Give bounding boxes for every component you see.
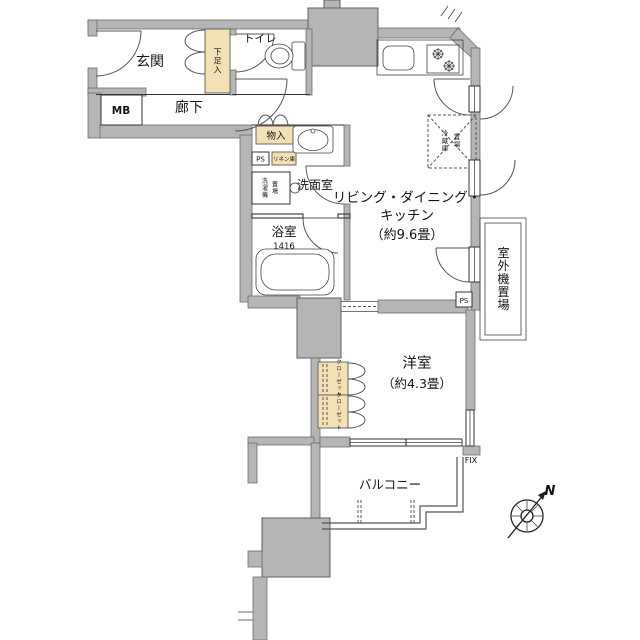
washroom-label: 洗面室 [297,177,333,192]
hallway-door-swing [235,79,287,131]
linen-cabinet-label: リネン庫 [273,155,296,163]
balcony: バルコニー [322,457,463,529]
top-pillar-block [308,8,378,66]
fridge-space-label-col2: 置場 [452,133,460,149]
western-room-label-line1: 洋室 [403,355,432,372]
sliding-door-ldk-bedroom [341,302,378,312]
room-toilet: トイレ [236,32,305,72]
balcony-label: バルコニー [359,477,421,492]
pipe-space-2-label: PS [460,297,469,305]
bathroom-label: 浴室 [271,224,296,239]
center-pillar-block [297,298,341,358]
washer-space-label-col1: 洗濯機 [261,177,268,199]
floor-plan-svg: 玄関 下足入 トイレ MB 廊下 物入 PS リネン庫 [0,0,640,640]
compass-icon: N [508,484,556,538]
stove-icon [427,45,459,73]
hallway-label: 廊下 [175,99,203,116]
entrance-label: 玄関 [136,53,164,70]
ldk-label-line3: （約9.6畳） [371,228,444,243]
outdoor-unit-label: 室外機置場 [496,245,510,311]
bedroom-windows: FIX [350,410,478,465]
meter-box-label: MB [112,105,130,117]
window-swing-outer [480,160,515,195]
closet-lower-label: クローゼット [335,392,342,431]
room-entrance: 玄関 下足入 [96,29,230,93]
window-swing [434,79,470,115]
room-western: 洋室 （約4.3畳） クローゼット クローゼット FIX [318,355,478,465]
shoe-cabinet-door [185,52,205,74]
range-hood-ticks [441,6,462,22]
closet-lower: クローゼット [318,392,365,431]
bathroom-door-swing [303,218,338,253]
door-swing [436,248,470,282]
closet-door [348,396,365,412]
storage-door [273,115,288,126]
kitchen-sink-icon [383,46,414,70]
kitchen-counter [377,6,463,75]
window-swing-outer [480,86,513,119]
compass-north-label: N [545,484,556,499]
vanity-sink-icon [293,126,333,153]
toilet-right-wall [306,29,312,95]
storage-label: 物入 [266,130,286,142]
floor-plan-canvas: 玄関 下足入 トイレ MB 廊下 物入 PS リネン庫 [0,0,640,640]
room-hallway: MB 廊下 [101,79,287,131]
balcony-railing [322,457,463,529]
bottom-pillar-block [262,518,330,577]
closet-upper: クローゼット [318,359,365,398]
shoe-cabinet-door [185,30,205,52]
bathtub-icon [256,249,334,295]
toilet-icon [265,42,305,70]
fix-window-label: FIX [465,456,478,465]
closet-door [348,379,365,395]
western-room-label-line2: （約4.3畳） [382,376,452,391]
fridge-space-label-col1: 冷蔵庫 [440,128,448,152]
entrance-door-swing [96,31,141,76]
ldk-label-line1: リビング・ダイニング・ [333,190,482,206]
closet-door [348,363,365,379]
room-bathroom: 浴室 1416 [256,218,338,295]
ldk-label-line2: キッチン [380,208,434,224]
shoe-cabinet-label: 下足入 [213,48,222,75]
pipe-space-label: PS [256,156,265,164]
washer-space-label-col2: 置場 [271,181,278,195]
closet-door [348,412,365,428]
